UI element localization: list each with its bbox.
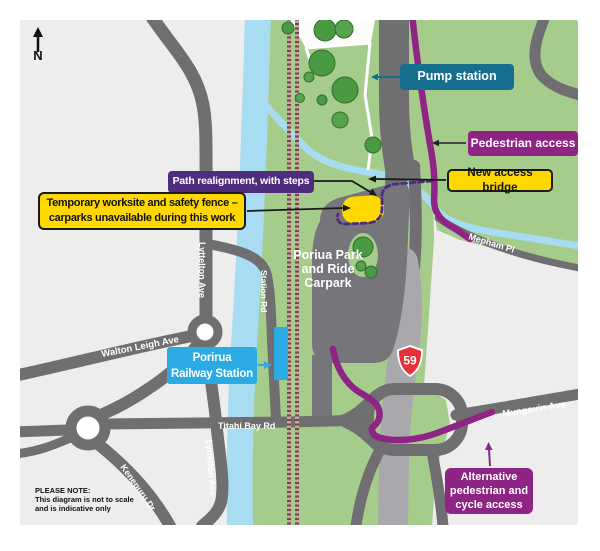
new-access-bridge-label: New access bridge bbox=[447, 169, 553, 192]
highway-59-number: 59 bbox=[403, 354, 417, 368]
temporary-worksite-label: Temporary worksite and safety fence – ca… bbox=[38, 192, 246, 230]
roundabout-walton bbox=[192, 319, 218, 345]
railway-station-label: Porirua Railway Station bbox=[167, 347, 257, 384]
disclaimer-note: PLEASE NOTE: This diagram is not to scal… bbox=[35, 486, 134, 513]
pump-station-label: Pump station bbox=[400, 64, 514, 90]
alternative-access-label: Alternative pedestrian and cycle access bbox=[445, 468, 533, 514]
station-platform bbox=[274, 327, 288, 380]
park-and-ride-label: Poriua Park and Ride Carpark bbox=[288, 248, 368, 290]
path-realignment-label: Path realignment, with steps bbox=[168, 171, 314, 193]
worksite-map: 59 bbox=[0, 0, 600, 551]
road-label-lyttelton-upper: Lyttelton Ave bbox=[197, 242, 207, 298]
road-label-station-rd: Station Rd bbox=[259, 270, 269, 313]
compass-label: N bbox=[30, 48, 46, 63]
road-label-titahi-bay: Titahi Bay Rd bbox=[218, 421, 275, 431]
roundabout-kenepuru bbox=[71, 411, 105, 445]
pedestrian-access-label: Pedestrian access bbox=[468, 131, 578, 156]
